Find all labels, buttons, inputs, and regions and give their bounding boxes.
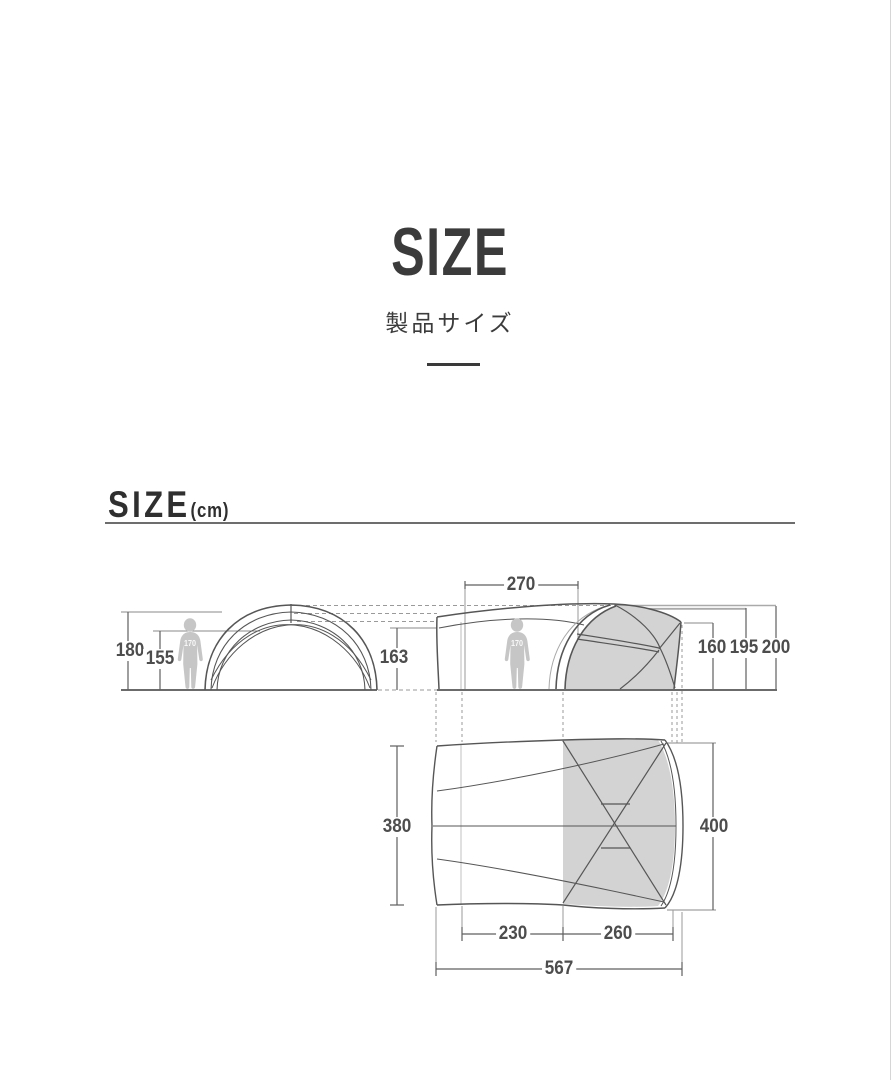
- dim-label-ridge-height: 195: [727, 638, 761, 658]
- dim-label-canopy-floor-length: 230: [496, 924, 530, 944]
- dim-label-dome-floor-length: 260: [601, 924, 635, 944]
- dim-label-side-left-height: 163: [377, 648, 411, 668]
- dim-label-total-length: 567: [542, 959, 576, 979]
- plan-view-dome-shade: [563, 739, 675, 907]
- dim-label-plan-left-width: 380: [380, 817, 414, 837]
- person-height-label-side: 170: [511, 640, 523, 648]
- dim-label-peak-height: 200: [759, 638, 793, 658]
- tent-plan-view: [432, 739, 683, 909]
- dim-label-plan-right-width: 400: [697, 817, 731, 837]
- dim-label-front-total-height: 180: [113, 641, 147, 661]
- dim-label-dome-front-height: 160: [695, 638, 729, 658]
- person-silhouette-front: [178, 618, 203, 689]
- dim-label-canopy-top-length: 270: [504, 575, 538, 595]
- dim-label-front-inner-height: 155: [143, 649, 177, 669]
- size-diagram: [0, 0, 893, 1080]
- person-silhouette-side: [505, 618, 530, 689]
- person-height-label-front: 170: [184, 640, 196, 648]
